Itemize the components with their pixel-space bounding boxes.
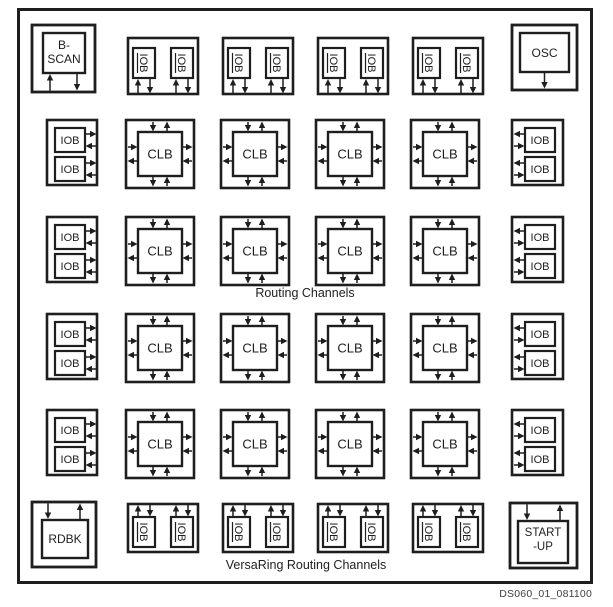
iob-pair-top: IOBIOB — [128, 38, 198, 94]
clb-block: CLB — [126, 217, 194, 285]
clb-label: CLB — [337, 341, 362, 356]
startup-label-line1: START — [525, 527, 562, 539]
iob-label: IOB — [61, 135, 80, 147]
rdbk-block: RDBK — [32, 502, 96, 567]
clb-block: CLB — [316, 120, 384, 188]
clb-block: CLB — [126, 314, 194, 382]
iob-label: IOB — [61, 232, 80, 244]
iob-label: IOB — [327, 54, 339, 73]
iob-pair-right: IOBIOB — [512, 120, 563, 185]
clb-label: CLB — [147, 244, 172, 259]
iob-label: IOB — [365, 54, 377, 73]
iob-label: IOB — [531, 454, 550, 466]
startup-label-line2: -UP — [533, 541, 553, 553]
clb-label: CLB — [432, 244, 457, 259]
clb-block: CLB — [221, 217, 289, 285]
iob-label: IOB — [531, 358, 550, 370]
iob-label: IOB — [460, 54, 472, 73]
clb-block: CLB — [126, 410, 194, 478]
clb-block: CLB — [411, 410, 479, 478]
iob-pair-bottom: IOBIOB — [223, 504, 293, 552]
iob-label: IOB — [422, 54, 434, 73]
iob-label: IOB — [531, 135, 550, 147]
iob-pair-left: IOBIOB — [47, 120, 97, 185]
iob-label: IOB — [61, 261, 80, 273]
iob-pair-right: IOBIOB — [512, 410, 563, 475]
iob-pair-right: IOBIOB — [512, 314, 563, 379]
iob-label: IOB — [232, 54, 244, 73]
clb-label: CLB — [242, 437, 267, 452]
diagram-canvas: B-SCANOSCRDBKSTART-UPIOBIOBIOBIOBIOBIOBI… — [0, 0, 613, 607]
clb-label: CLB — [337, 147, 362, 162]
iob-pair-left: IOBIOB — [47, 314, 97, 379]
bscan-label-line1: B- — [58, 38, 70, 52]
iob-label: IOB — [531, 329, 550, 341]
startup-block: START-UP — [510, 503, 577, 568]
clb-label: CLB — [242, 147, 267, 162]
iob-label: IOB — [531, 425, 550, 437]
iob-label: IOB — [61, 454, 80, 466]
rdbk-label: RDBK — [48, 532, 81, 546]
clb-block: CLB — [221, 410, 289, 478]
clb-label: CLB — [147, 147, 172, 162]
clb-label: CLB — [147, 437, 172, 452]
clb-block: CLB — [411, 217, 479, 285]
clb-label: CLB — [337, 437, 362, 452]
iob-label: IOB — [270, 54, 282, 73]
iob-pair-left: IOBIOB — [47, 217, 97, 282]
osc-label: OSC — [531, 46, 557, 60]
iob-pair-top: IOBIOB — [318, 38, 388, 94]
osc-block: OSC — [512, 25, 577, 90]
iob-label: IOB — [137, 54, 149, 73]
iob-pair-bottom: IOBIOB — [413, 504, 483, 552]
routing-channels-label: Routing Channels — [255, 286, 354, 300]
iob-label: IOB — [422, 523, 434, 542]
figure-number: DS060_01_081100 — [499, 588, 592, 600]
iob-label: IOB — [460, 523, 472, 542]
clb-block: CLB — [411, 120, 479, 188]
iob-label: IOB — [175, 54, 187, 73]
clb-block: CLB — [126, 120, 194, 188]
clb-block: CLB — [316, 217, 384, 285]
clb-label: CLB — [432, 437, 457, 452]
fpga-architecture-diagram: B-SCANOSCRDBKSTART-UPIOBIOBIOBIOBIOBIOBI… — [0, 0, 613, 607]
bscan-label-line2: SCAN — [47, 52, 80, 66]
clb-label: CLB — [242, 244, 267, 259]
versaring-label: VersaRing Routing Channels — [226, 558, 387, 572]
clb-block: CLB — [221, 314, 289, 382]
iob-label: IOB — [531, 261, 550, 273]
iob-label: IOB — [175, 523, 187, 542]
clb-block: CLB — [221, 120, 289, 188]
iob-label: IOB — [61, 358, 80, 370]
clb-label: CLB — [147, 341, 172, 356]
clb-block: CLB — [316, 410, 384, 478]
iob-pair-right: IOBIOB — [512, 217, 563, 282]
iob-label: IOB — [137, 523, 149, 542]
iob-pair-bottom: IOBIOB — [318, 504, 388, 552]
clb-label: CLB — [242, 341, 267, 356]
iob-label: IOB — [327, 523, 339, 542]
iob-label: IOB — [531, 232, 550, 244]
iob-label: IOB — [61, 329, 80, 341]
clb-label: CLB — [432, 147, 457, 162]
iob-label: IOB — [61, 164, 80, 176]
iob-label: IOB — [232, 523, 244, 542]
iob-pair-bottom: IOBIOB — [128, 504, 198, 552]
clb-block: CLB — [316, 314, 384, 382]
bscan-block: B-SCAN — [32, 25, 95, 92]
clb-block: CLB — [411, 314, 479, 382]
iob-pair-top: IOBIOB — [223, 38, 293, 94]
iob-pair-left: IOBIOB — [47, 410, 97, 475]
iob-label: IOB — [61, 425, 80, 437]
iob-label: IOB — [270, 523, 282, 542]
iob-pair-top: IOBIOB — [413, 38, 483, 94]
clb-label: CLB — [432, 341, 457, 356]
iob-label: IOB — [365, 523, 377, 542]
clb-label: CLB — [337, 244, 362, 259]
iob-label: IOB — [531, 164, 550, 176]
